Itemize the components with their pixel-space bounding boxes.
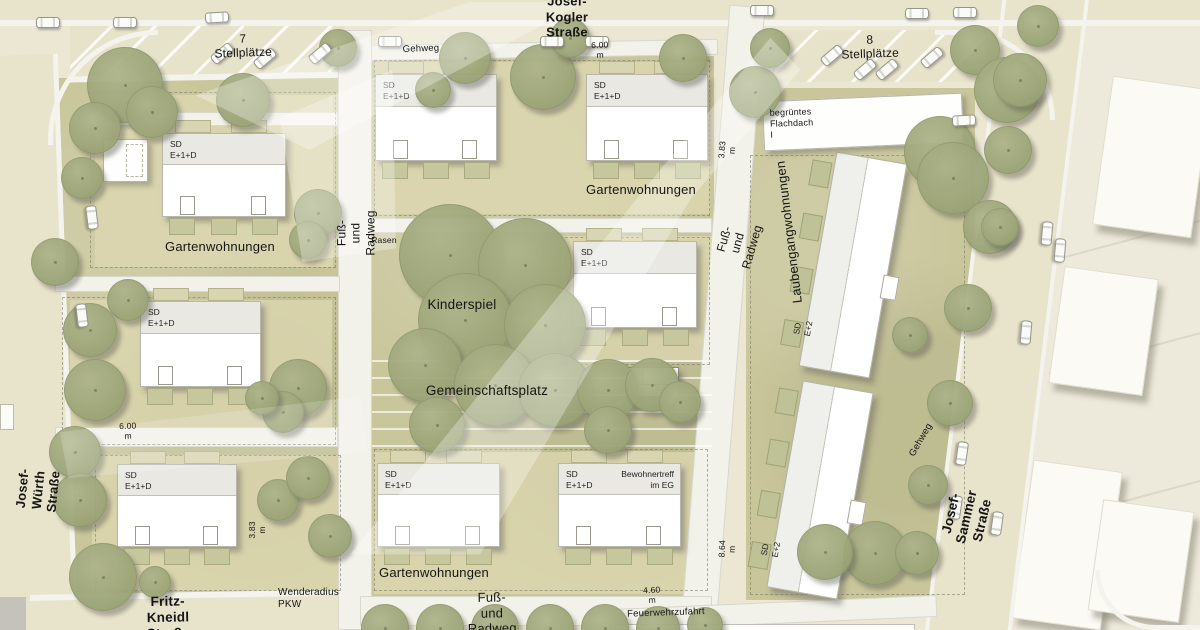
garden-shed [446, 450, 482, 463]
terrace-patio [169, 218, 195, 235]
label-7-stellpl-tze: 7 Stellplätze [214, 31, 273, 62]
house-building: SD E+1+D [117, 464, 237, 547]
tree-icon [308, 514, 352, 558]
tree-icon [286, 456, 330, 500]
label-rasen: Rasen [371, 235, 397, 245]
house-type-label: SD E+1+D [170, 139, 196, 161]
car-icon [1040, 221, 1053, 246]
house-building: SD E+1+DBewohnertreff im EG [558, 463, 681, 547]
label-gartenwohnungen: Gartenwohnungen [165, 239, 275, 255]
tree-icon [750, 28, 790, 68]
house-entrance [251, 196, 266, 215]
tree-icon [289, 221, 327, 259]
tree-icon [984, 126, 1032, 174]
tree-icon [64, 359, 126, 421]
label-begr-ntes-flachdach-i: begrüntes Flachdach I [769, 106, 813, 140]
terrace-patio [252, 218, 278, 235]
tree-icon [409, 397, 465, 453]
label-wenderadius-pkw: Wenderadius PKW [278, 587, 339, 611]
label-6-00-m: 6.00 m [591, 40, 609, 61]
house-entrance [227, 366, 242, 385]
label-4-60-m: 4.60 m [643, 584, 661, 605]
tree-icon [216, 73, 270, 127]
label-fritz-kneidl-stra-e: Fritz-Kneidl Straße [146, 593, 190, 630]
terrace-patio [675, 162, 701, 179]
house-entrance [604, 140, 619, 159]
car-icon [378, 36, 402, 47]
house-entrance [135, 526, 150, 545]
tree-icon [892, 317, 928, 353]
tree-icon [659, 34, 707, 82]
tree-icon [908, 465, 948, 505]
terrace-patio [647, 548, 673, 565]
building-fragment-west [0, 404, 14, 430]
house-entrance [393, 140, 408, 159]
label-8-stellpl-tze: 8 Stellplätze [841, 32, 900, 63]
garden-shed [390, 450, 426, 463]
label-3-83-m: 3.83 m [716, 140, 738, 159]
house-type-label: SD E+1+D [125, 470, 151, 492]
house-building: SD E+1+D [140, 301, 261, 387]
tree-icon [944, 284, 992, 332]
garden-shed [586, 228, 622, 241]
site-plan: SD E+1+DSD E+1+DSD E+1+DSD E+1+DSD E+1+D… [0, 0, 1200, 630]
house-entrance [465, 526, 480, 545]
label-fu-und-radweg: Fuß- und Radweg [467, 589, 517, 630]
terrace-patio [384, 548, 410, 565]
terrace-patio [634, 162, 660, 179]
terrace-patio [164, 548, 190, 565]
label-fu-und-radweg: Fuß- und Radweg [334, 210, 377, 255]
garden-shed [599, 61, 635, 74]
house-entrance [462, 140, 477, 159]
terrace-patio [382, 162, 408, 179]
tree-icon [69, 543, 137, 611]
garden-shed [153, 288, 189, 301]
tree-icon [415, 72, 451, 108]
tree-icon [31, 238, 79, 286]
building-fragment-southwest [0, 597, 26, 630]
tree-icon [993, 53, 1047, 107]
garden-shed [388, 61, 424, 74]
garden-shed [130, 451, 166, 464]
house-building: SD E+1+D [162, 133, 286, 217]
house-entrance [646, 526, 661, 545]
terrace-patio [464, 162, 490, 179]
garden-shed [208, 288, 244, 301]
label-kinderspiel: Kinderspiel [428, 297, 497, 313]
house-type-label: SD E+1+D [383, 80, 409, 102]
tree-icon [107, 279, 149, 321]
label-josef-w-rth-stra-e: Josef-Würth Straße [13, 467, 64, 513]
car-icon [953, 7, 977, 18]
house-entrance [662, 307, 677, 326]
label-gartenwohnungen: Gartenwohnungen [586, 182, 696, 198]
house-entrance [673, 140, 688, 159]
label-gemeinschaftsplatz: Gemeinschaftsplatz [426, 383, 548, 399]
terrace-patio [425, 548, 451, 565]
terrace-patio [593, 162, 619, 179]
terrace-patio [187, 388, 213, 405]
house-type-label: SD E+1+D [566, 469, 592, 491]
car-icon [1053, 238, 1066, 263]
path-west-cluster-2 [55, 276, 340, 292]
house-entrance [395, 526, 410, 545]
label-josef-kogler-stra-e: Josef-Kogler Straße [546, 0, 588, 40]
garden-shed [184, 451, 220, 464]
car-icon [905, 8, 929, 19]
house-entrance [576, 526, 591, 545]
terrace-patio [423, 162, 449, 179]
tree-icon [981, 208, 1019, 246]
tree-icon [439, 32, 491, 84]
house-type-label: SD E+1+D [581, 247, 607, 269]
garden-shed [627, 450, 663, 463]
garden-shed [642, 228, 678, 241]
car-icon [1019, 320, 1032, 345]
terrace-patio [565, 548, 591, 565]
house-building: SD E+1+D [586, 74, 708, 161]
tree-icon [245, 381, 279, 415]
house-type-label: SD E+1+D [148, 307, 174, 329]
label-8-64-m: 8.64 m [716, 540, 737, 558]
house-entrance [158, 366, 173, 385]
terrace-patio [147, 388, 173, 405]
car-icon [113, 17, 137, 28]
house-building: SD E+1+D [573, 241, 697, 328]
house-type-label: SD E+1+D [594, 80, 620, 102]
tree-icon [895, 531, 939, 575]
car-icon [750, 5, 774, 16]
car-icon [205, 11, 230, 23]
tree-icon [69, 102, 121, 154]
terrace-patio [204, 548, 230, 565]
tree-icon [584, 406, 632, 454]
car-icon [36, 17, 60, 28]
label-gehweg: Gehweg [403, 43, 440, 56]
tree-icon [1017, 5, 1059, 47]
label-gartenwohnungen: Gartenwohnungen [379, 565, 489, 581]
tree-icon [126, 86, 178, 138]
tree-icon [61, 157, 103, 199]
tree-icon [927, 380, 973, 426]
tree-icon [63, 303, 117, 357]
tree-icon [659, 381, 701, 423]
label-3-83-m: 3.83 m [247, 521, 267, 538]
tree-icon [797, 524, 853, 580]
car-icon [952, 114, 977, 126]
terrace-patio [663, 329, 689, 346]
garden-shed [175, 120, 211, 133]
terrace-patio [211, 218, 237, 235]
existing-building [1048, 266, 1158, 396]
house-type-label: SD E+1+D [385, 469, 411, 491]
bewohnertreff-label: Bewohnertreff im EG [621, 469, 674, 491]
house-entrance [180, 196, 195, 215]
terrace-patio [622, 329, 648, 346]
terrace-patio [606, 548, 632, 565]
house-entrance [203, 526, 218, 545]
label-6-00-m: 6.00 m [119, 421, 137, 442]
terrace-patio [466, 548, 492, 565]
house-building: SD E+1+D [377, 463, 500, 547]
house-entrance [591, 307, 606, 326]
garage-detail [126, 144, 143, 177]
